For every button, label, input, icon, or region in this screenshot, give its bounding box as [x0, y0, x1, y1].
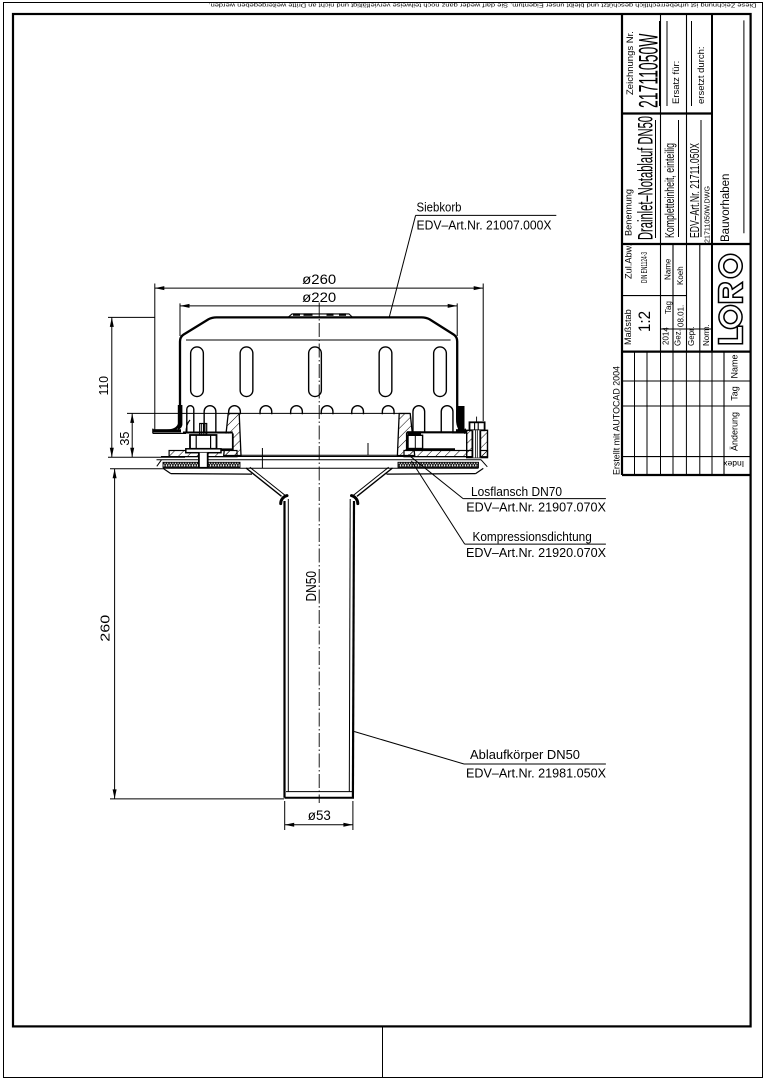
svg-text:Maßstab: Maßstab — [623, 309, 633, 345]
svg-text:DN50: DN50 — [303, 571, 320, 602]
svg-text:Ablaufkörper DN50: Ablaufkörper DN50 — [470, 748, 580, 762]
svg-text:Diese Zeichnung ist urheberrec: Diese Zeichnung ist urheberrechtlich ges… — [208, 1, 756, 7]
svg-text:EDV–Art.Nr. 21711.050X: EDV–Art.Nr. 21711.050X — [688, 143, 702, 238]
svg-text:Koeh: Koeh — [676, 266, 685, 285]
svg-text:Erstellt mit AUTOCAD 2004: Erstellt mit AUTOCAD 2004 — [612, 366, 622, 475]
svg-text:Benennung: Benennung — [624, 189, 634, 236]
svg-text:EDV–Art.Nr. 21007.000X: EDV–Art.Nr. 21007.000X — [417, 219, 553, 233]
svg-text:Losflansch DN70: Losflansch DN70 — [471, 485, 562, 499]
svg-text:21711050W.DWG: 21711050W.DWG — [705, 186, 712, 243]
svg-text:Tag: Tag — [664, 301, 673, 314]
svg-text:08.01.: 08.01. — [677, 305, 686, 327]
svg-text:Norm.: Norm. — [702, 324, 711, 346]
svg-text:Gepr.: Gepr. — [687, 326, 696, 346]
svg-text:Kompressionsdichtung: Kompressionsdichtung — [473, 530, 592, 544]
svg-text:EDV–Art.Nr. 21920.070X: EDV–Art.Nr. 21920.070X — [466, 546, 607, 560]
svg-text:Siebkorb: Siebkorb — [417, 201, 462, 215]
svg-text:Änderung: Änderung — [730, 412, 740, 451]
svg-text:Tag: Tag — [730, 386, 740, 401]
svg-text:Drainlet–Notablauf DN50: Drainlet–Notablauf DN50 — [635, 116, 658, 240]
svg-text:Index: Index — [723, 459, 745, 469]
svg-text:Zul.Abw.: Zul.Abw. — [624, 244, 634, 279]
svg-text:35: 35 — [118, 432, 132, 446]
svg-text:Gez.: Gez. — [674, 329, 683, 346]
svg-text:ø53: ø53 — [308, 808, 331, 823]
svg-text:110: 110 — [97, 376, 111, 395]
svg-text:1:2: 1:2 — [635, 311, 654, 332]
svg-text:Name: Name — [664, 258, 673, 280]
svg-text:260: 260 — [97, 615, 112, 642]
svg-text:EDV–Art.Nr. 21907.070X: EDV–Art.Nr. 21907.070X — [466, 501, 606, 515]
svg-text:Kompletteinheit, einteilig: Kompletteinheit, einteilig — [663, 143, 677, 238]
svg-text:Ersatz für:: Ersatz für: — [671, 61, 682, 104]
svg-text:DIN EN1124-3: DIN EN1124-3 — [640, 252, 649, 283]
svg-text:2014: 2014 — [662, 327, 671, 345]
svg-text:EDV–Art.Nr. 21981.050X: EDV–Art.Nr. 21981.050X — [466, 767, 607, 781]
svg-text:ø260: ø260 — [302, 272, 336, 287]
svg-text:ersetzt durch:: ersetzt durch: — [696, 46, 707, 104]
svg-text:Name: Name — [730, 354, 740, 378]
svg-text:Bauvorhaben: Bauvorhaben — [720, 174, 732, 242]
